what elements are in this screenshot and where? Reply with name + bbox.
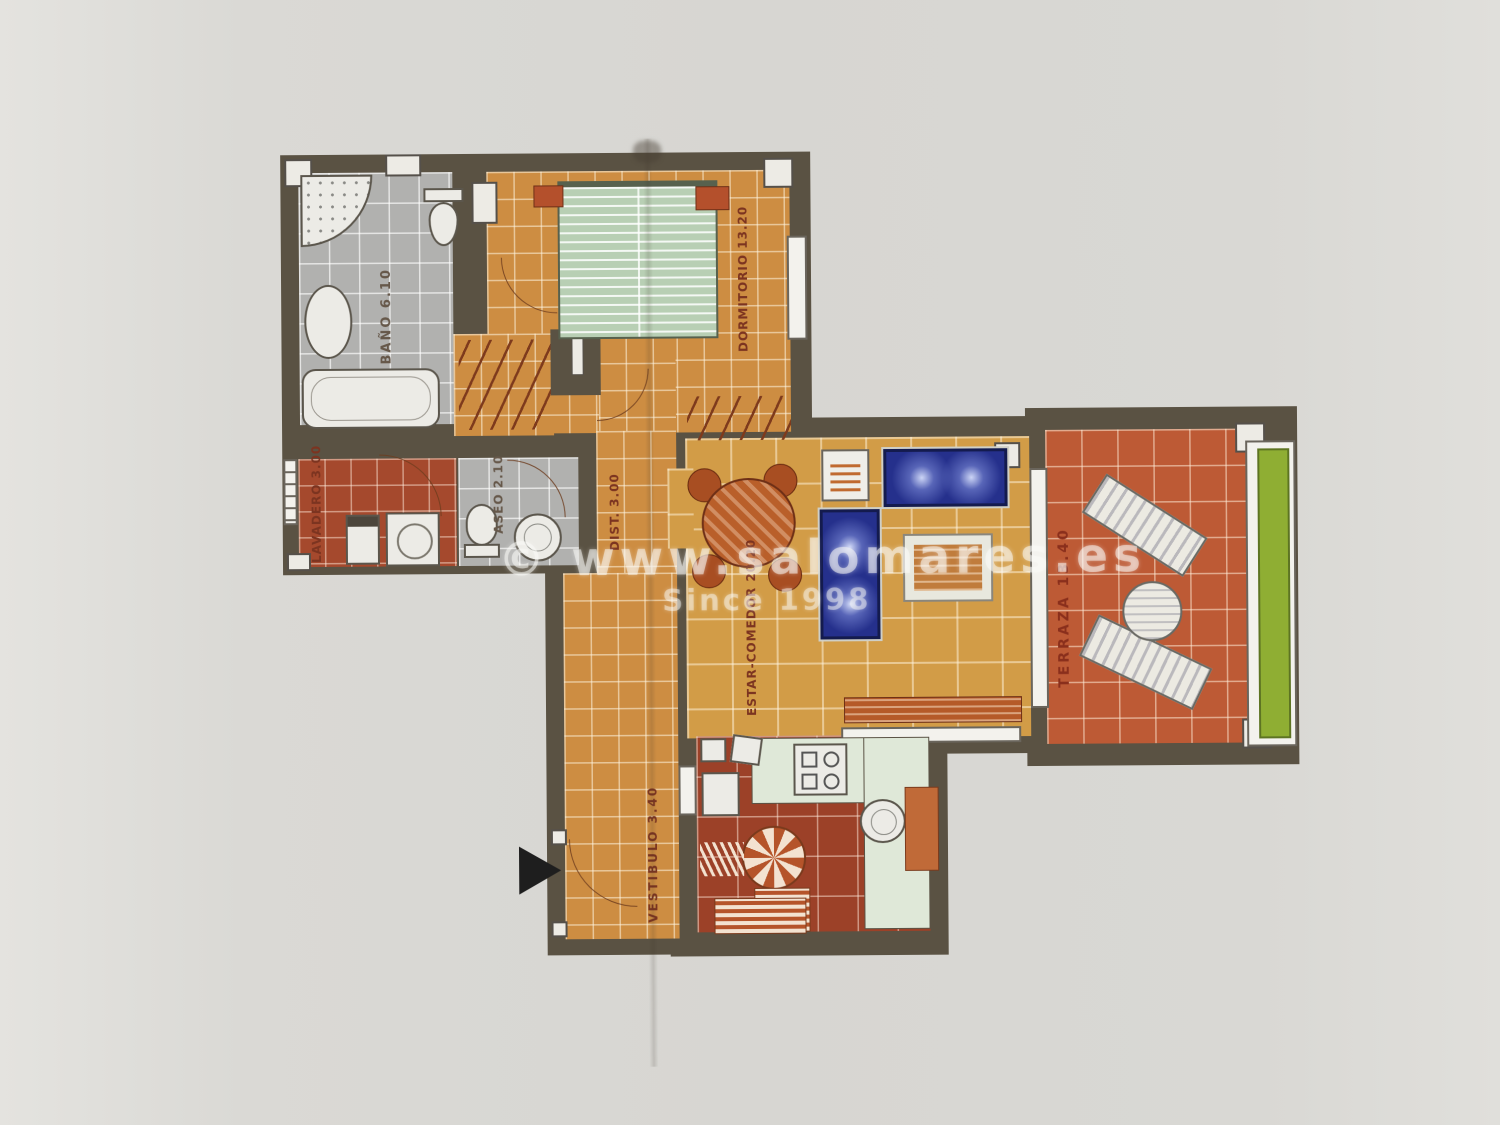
burner [823,751,839,767]
side-table-icon [821,449,869,501]
room-label-bano: BAÑO 6.10 [379,268,395,365]
cabinet-icon [700,738,726,762]
washing-machine-icon [386,512,440,566]
cabinet-icon [730,734,763,766]
burner [801,774,817,790]
room-label-aseo: ASEO 2.10 [491,455,506,534]
planter-green [1257,448,1291,738]
door-jamb [571,335,583,375]
toilet-tank-icon [464,544,500,558]
side-table-decor [830,459,860,491]
burner [823,773,839,789]
door-jamb [552,921,568,937]
corner-pillar [287,553,311,571]
room-label-dormitorio: DORMITORIO 13.20 [736,206,751,352]
washer-icon [346,515,380,565]
sofa-icon [883,448,1007,507]
entrance-arrow-icon [519,846,561,894]
round-table-fan-icon [742,826,806,890]
door-jamb [551,829,567,845]
washbasin-icon [304,285,353,359]
toilet-tank-icon [423,188,463,202]
cabinet-icon [701,772,739,816]
paper-fold-smudge [633,141,661,163]
watermark-since: Since 1998 [662,582,871,617]
floor-plan: BAÑO 6.10 DORMITORIO 13.20 LAVADERO 3.00… [0,0,1500,1125]
scanned-floor-plan-page: BAÑO 6.10 DORMITORIO 13.20 LAVADERO 3.00… [0,0,1500,1125]
hob-icon [793,743,847,795]
bed-center-line [637,187,640,337]
washer-panel [348,517,378,527]
wardrobe-hangers-icon [458,339,551,430]
wardrobe-hangers-icon [687,396,791,441]
kitchen-sink-icon [860,799,906,843]
bathtub-icon [302,368,440,429]
burner [801,752,817,768]
fridge-icon [905,787,940,871]
lower-shelf-icon [714,898,806,935]
room-label-lavadero: LAVADERO 3.00 [309,445,324,563]
nightstand-icon [695,186,729,210]
watermark-url: © www.salomares.es [498,528,1146,588]
bathtub-inner [311,376,431,421]
pillar-bath-bedroom [471,182,497,224]
sideboard-bench-icon [844,696,1022,723]
kitchen-door-gap [678,765,696,815]
bedroom-window [787,236,808,340]
decor-squiggle-icon [700,842,744,876]
terrace-glass-door [1029,468,1049,708]
window-top-bath [385,154,421,176]
washer-drum [397,523,433,559]
bed-icon [557,180,718,339]
terrace-table-icon [1122,581,1182,641]
corner-pillar [763,158,793,188]
sink-inner [871,809,897,835]
laundry-vent [283,459,297,525]
nightstand-icon [533,185,563,207]
